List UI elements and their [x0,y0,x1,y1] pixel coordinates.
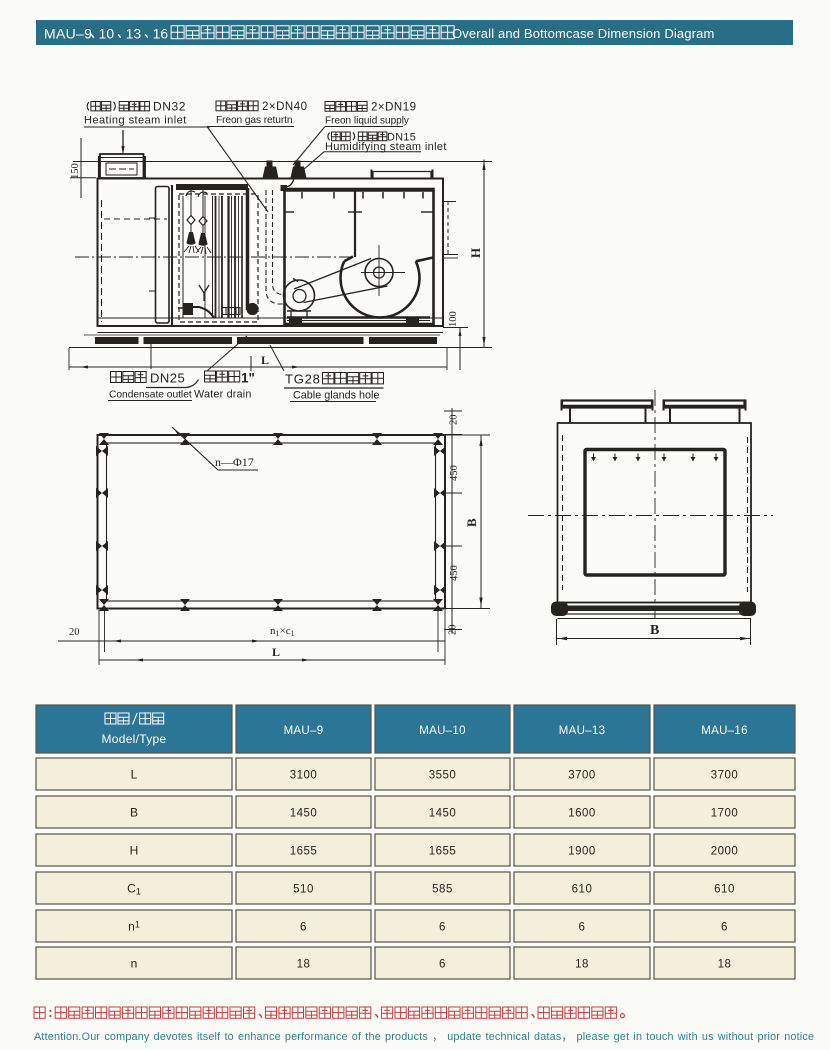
svg-text:Condensate outlet: Condensate outlet [109,390,192,401]
svg-text:Overall and Bottomcase Dimensi: Overall and Bottomcase Dimension Diagram [452,26,715,41]
svg-text:L: L [261,353,269,367]
svg-text:Water drain: Water drain [194,389,252,401]
svg-text:610: 610 [572,884,593,896]
svg-text:6: 6 [579,922,586,934]
svg-text:1450: 1450 [429,808,457,820]
svg-text:Humidifying steam inlet: Humidifying steam inlet [325,141,447,153]
svg-text:1700: 1700 [711,808,739,820]
svg-text:B: B [130,806,138,820]
svg-text:H: H [130,844,139,858]
svg-text:n—Φ17: n—Φ17 [215,455,254,469]
svg-text:6: 6 [300,922,307,934]
svg-text:Attention.Our company devotes: Attention.Our company devotes itself to … [34,1031,814,1043]
svg-text:L: L [272,645,280,659]
svg-text:20: 20 [448,625,459,636]
svg-text:100: 100 [448,311,459,327]
svg-text:Model/Type: Model/Type [101,732,166,746]
svg-text:Heating steam inlet: Heating steam inlet [84,115,187,127]
svg-text:3700: 3700 [711,770,739,782]
svg-text:2×DN19: 2×DN19 [371,102,417,114]
svg-text:H: H [468,248,483,258]
svg-text:3550: 3550 [429,770,457,782]
svg-text:MAU–13: MAU–13 [559,725,606,737]
svg-text:L: L [131,768,138,782]
svg-text:1600: 1600 [568,808,596,820]
svg-text:2000: 2000 [711,846,739,858]
svg-text:TG28: TG28 [285,372,321,387]
svg-text:1900: 1900 [568,846,596,858]
svg-text:6: 6 [439,922,446,934]
svg-text:150: 150 [70,163,81,179]
svg-text:1655: 1655 [429,846,457,858]
svg-text:610: 610 [714,884,735,896]
svg-text:3700: 3700 [568,770,596,782]
svg-text:1655: 1655 [290,846,318,858]
svg-text:2×DN40: 2×DN40 [262,101,308,113]
svg-text:n: n [131,957,138,971]
svg-text:450: 450 [449,465,460,481]
svg-text:MAU–9: MAU–9 [44,26,92,42]
svg-text:MAU–16: MAU–16 [701,725,748,737]
svg-text:6: 6 [439,959,446,971]
svg-text:MAU–9: MAU–9 [284,725,324,737]
svg-text:B: B [464,518,479,527]
svg-text:20: 20 [69,627,80,638]
svg-text:16: 16 [153,26,169,42]
svg-text:510: 510 [293,884,314,896]
svg-text:585: 585 [432,884,453,896]
svg-text:450: 450 [449,565,460,581]
svg-text:DN25: DN25 [150,371,185,386]
svg-text:Freon gas returtn: Freon gas returtn [216,115,292,126]
svg-text:18: 18 [575,959,589,971]
svg-text:1": 1" [241,371,255,386]
svg-text:3100: 3100 [290,770,318,782]
svg-text:10: 10 [99,26,115,42]
svg-text:Cable glands hole: Cable glands hole [293,390,379,402]
svg-text:20: 20 [449,415,460,426]
svg-text:MAU–10: MAU–10 [419,725,466,737]
svg-text:B: B [650,623,659,638]
svg-text:n1×c1: n1×c1 [270,625,295,638]
svg-text:13: 13 [126,26,142,42]
svg-text:Freon liquid supply: Freon liquid supply [325,116,409,127]
svg-text:1450: 1450 [290,808,318,820]
svg-text:6: 6 [721,922,728,934]
svg-text:18: 18 [297,959,311,971]
svg-text:DN32: DN32 [153,100,186,114]
svg-text:18: 18 [718,959,732,971]
